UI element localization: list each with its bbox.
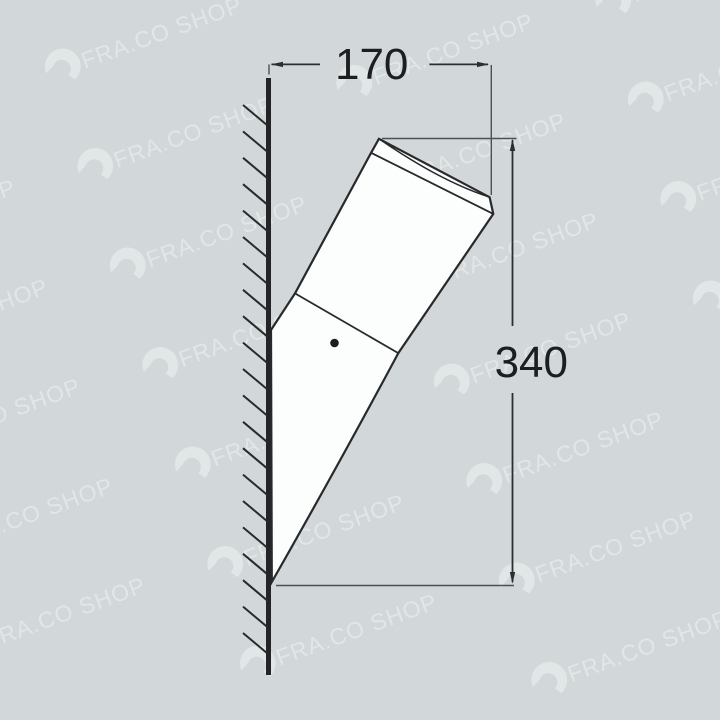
svg-text:170: 170 — [335, 40, 408, 89]
svg-text:340: 340 — [495, 338, 568, 387]
